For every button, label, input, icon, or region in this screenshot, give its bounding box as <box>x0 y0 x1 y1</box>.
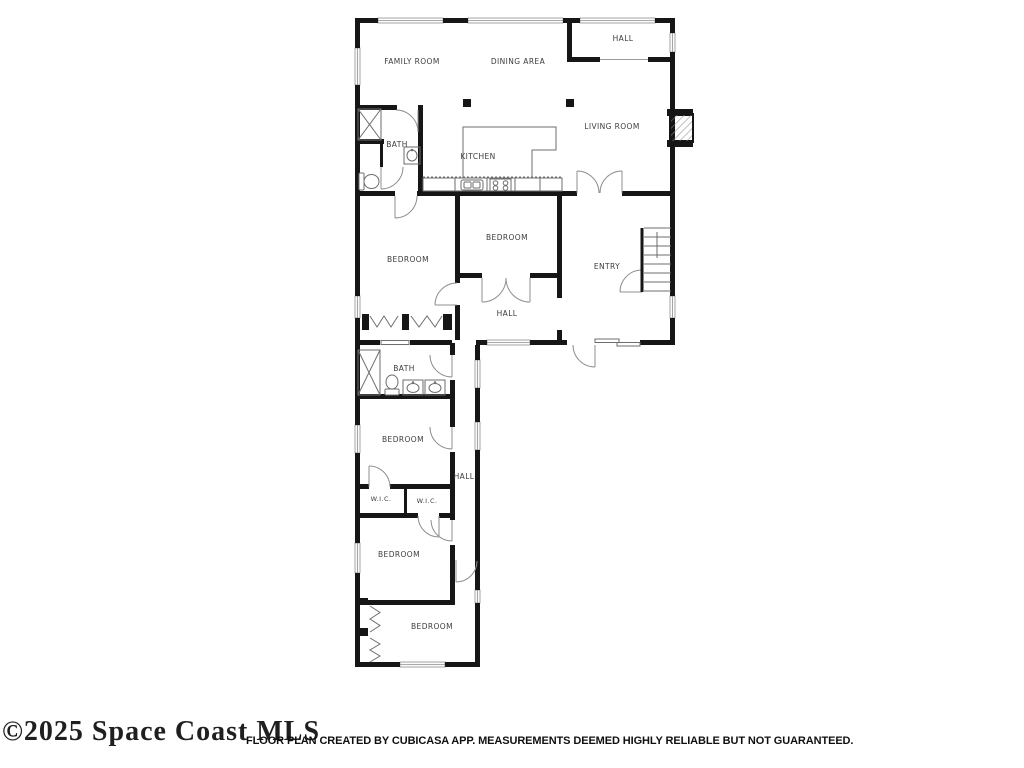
room-labels: FAMILY ROOM DINING AREA HALL LIVING ROOM… <box>371 34 640 631</box>
door-arc <box>431 520 452 541</box>
toilet-icon <box>385 375 399 395</box>
door-arc <box>369 466 390 487</box>
door-arc <box>395 196 417 218</box>
kitchen-sink-icon <box>461 180 483 190</box>
stove-icon <box>490 179 511 191</box>
room-label-family-room: FAMILY ROOM <box>384 57 439 66</box>
sink-icon <box>404 147 420 164</box>
door-arc <box>456 560 477 582</box>
room-label-kitchen: KITCHEN <box>460 152 495 161</box>
stairs-icon <box>642 228 671 292</box>
room-label-wic-2: W.I.C. <box>417 497 438 505</box>
room-label-bath-top: BATH <box>386 140 408 149</box>
pocket-door <box>381 341 409 345</box>
room-label-hall-middle: HALL <box>497 309 518 318</box>
room-label-bath-wing: BATH <box>393 364 415 373</box>
shower-icon <box>358 109 381 140</box>
door-arc <box>381 167 403 189</box>
room-label-hall-wing: HALL <box>454 472 475 481</box>
room-label-hall-top: HALL <box>613 34 634 43</box>
shower-icon <box>358 350 380 395</box>
room-label-wic-1: W.I.C. <box>371 495 392 503</box>
room-label-bedroom-3: BEDROOM <box>378 550 420 559</box>
room-label-bedroom-2: BEDROOM <box>382 435 424 444</box>
room-label-entry: ENTRY <box>594 262 620 271</box>
floor-plan-page: FAMILY ROOM DINING AREA HALL LIVING ROOM… <box>0 0 1024 768</box>
fixtures <box>357 99 693 662</box>
double-door-arc <box>577 171 622 193</box>
post <box>566 99 574 107</box>
double-vanity-icon <box>403 380 445 395</box>
room-label-living-room: LIVING ROOM <box>584 122 639 131</box>
room-label-bedroom-b: BEDROOM <box>486 233 528 242</box>
post <box>463 99 471 107</box>
door-arc <box>430 427 452 449</box>
door-arc <box>435 283 457 305</box>
fireplace-icon <box>667 109 693 147</box>
floor-plan-drawing: FAMILY ROOM DINING AREA HALL LIVING ROOM… <box>0 0 1024 768</box>
sliding-door <box>595 339 640 346</box>
room-label-dining-area: DINING AREA <box>491 57 546 66</box>
cubicasa-disclaimer: FLOOR PLAN CREATED BY CUBICASA APP. MEAS… <box>246 735 853 747</box>
door-arc <box>430 355 452 377</box>
door-arc <box>620 270 642 292</box>
room-label-bedroom-a: BEDROOM <box>387 255 429 264</box>
door-arc <box>396 110 418 132</box>
room-label-bedroom-4: BEDROOM <box>411 622 453 631</box>
door-arc <box>573 345 595 367</box>
toilet-icon <box>359 173 379 190</box>
double-door-arc <box>482 278 530 302</box>
closet-bifold-icon <box>357 598 380 662</box>
closet-bifold-icon <box>362 314 452 330</box>
